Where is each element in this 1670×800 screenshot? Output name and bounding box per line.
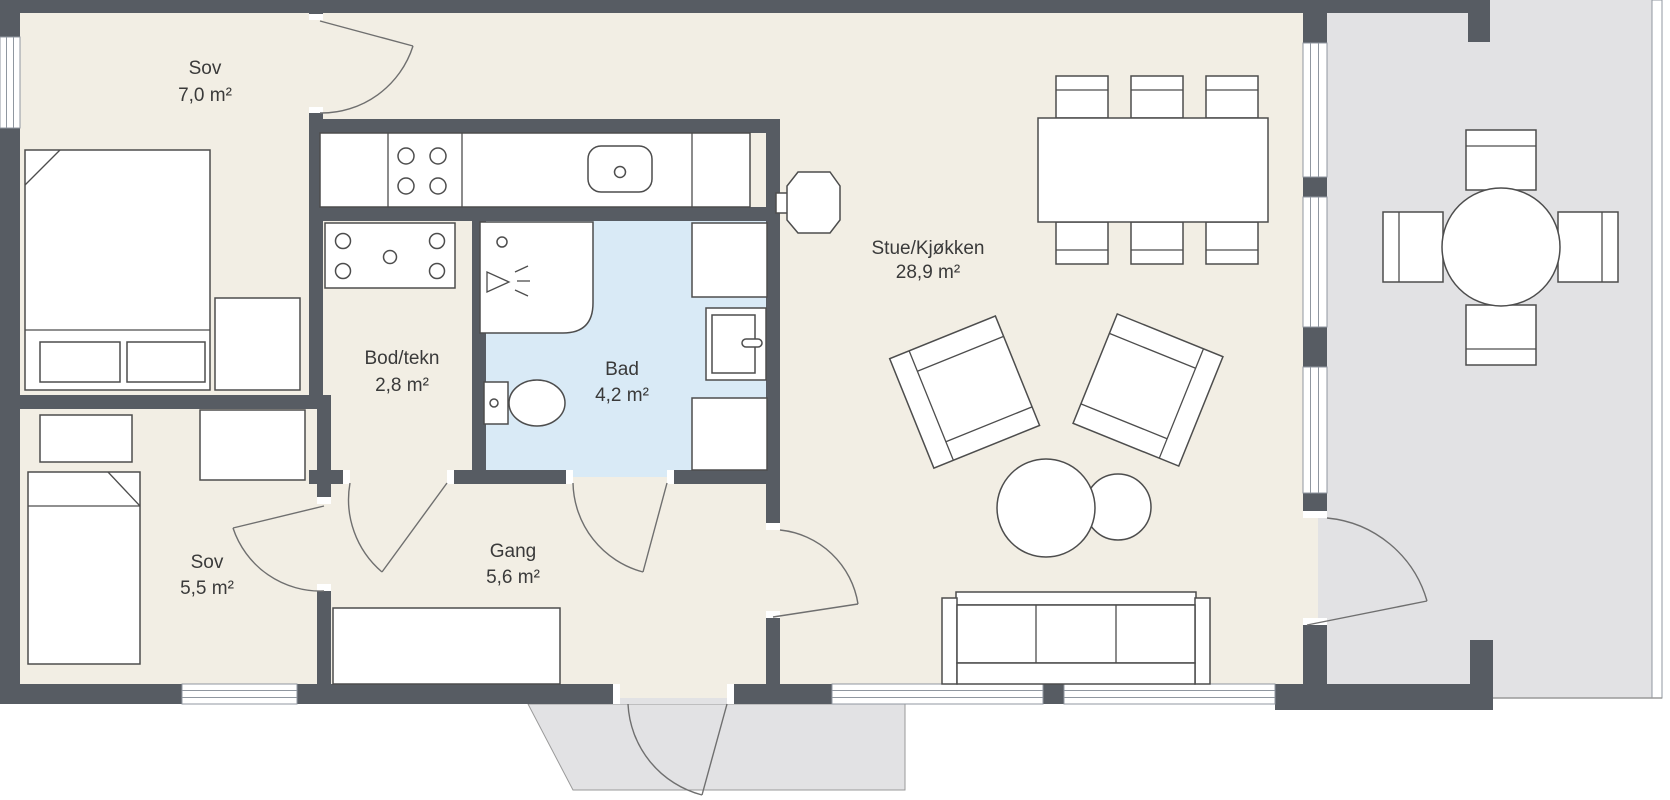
dining-chair xyxy=(1056,222,1108,264)
terrace-railing xyxy=(1652,0,1662,698)
dining-set xyxy=(1038,76,1268,264)
floor-plan: Sov 7,0 m² Bod/tekn 2,8 m² Bad 4,2 m² Ga… xyxy=(0,0,1670,800)
room-label-stue-name: Stue/Kjøkken xyxy=(872,238,985,259)
room-label-bad-area: 4,2 m² xyxy=(595,385,649,406)
room-label-stue-area: 28,9 m² xyxy=(896,262,960,283)
pillow xyxy=(40,342,120,382)
nightstand xyxy=(215,298,300,390)
entrance-porch xyxy=(528,704,905,790)
pillow xyxy=(127,342,205,382)
window-bottom-middle xyxy=(832,684,1043,704)
window-bottom-right xyxy=(1064,684,1275,704)
double-bed xyxy=(25,150,210,390)
dining-chair xyxy=(1131,76,1183,118)
dining-table xyxy=(1038,118,1268,222)
tech-unit xyxy=(325,223,455,288)
dining-chair xyxy=(1056,76,1108,118)
dining-chair xyxy=(1131,222,1183,264)
room-label-sov5-area: 5,5 m² xyxy=(180,578,234,599)
terrace-chair xyxy=(1558,212,1618,282)
single-bed xyxy=(28,472,140,664)
terrace-table xyxy=(1442,188,1560,306)
kitchen-sink xyxy=(588,146,652,192)
hall-bench xyxy=(333,608,560,684)
terrace-chair xyxy=(1383,212,1443,282)
dining-chair xyxy=(1206,222,1258,264)
window-bottom-left xyxy=(182,684,297,704)
room-label-gang-area: 5,6 m² xyxy=(486,567,540,588)
window-left xyxy=(0,37,20,128)
nightstand xyxy=(40,415,132,462)
terrace-chair xyxy=(1466,130,1536,190)
floor-plan-canvas: Sov 7,0 m² Bod/tekn 2,8 m² Bad 4,2 m² Ga… xyxy=(0,0,1670,800)
kitchen-counter xyxy=(320,133,750,207)
coffee-table xyxy=(997,459,1095,557)
terrace-chair xyxy=(1466,305,1536,365)
shower xyxy=(480,222,593,333)
wardrobe xyxy=(200,410,305,480)
room-label-sov7-name: Sov xyxy=(189,58,222,79)
room-label-bod-name: Bod/tekn xyxy=(365,348,440,369)
window-terrace-wall xyxy=(1303,43,1327,493)
toilet xyxy=(484,380,565,426)
room-label-sov5-name: Sov xyxy=(191,552,224,573)
dining-chair xyxy=(1206,76,1258,118)
room-label-bod-area: 2,8 m² xyxy=(375,375,429,396)
room-label-gang-name: Gang xyxy=(490,541,536,562)
sofa xyxy=(942,592,1210,684)
washing-machine xyxy=(706,308,766,380)
bathroom-cabinet xyxy=(692,223,767,297)
room-label-bad-name: Bad xyxy=(605,359,639,380)
bathroom-cabinet xyxy=(692,398,767,470)
room-label-sov7-area: 7,0 m² xyxy=(178,85,232,106)
